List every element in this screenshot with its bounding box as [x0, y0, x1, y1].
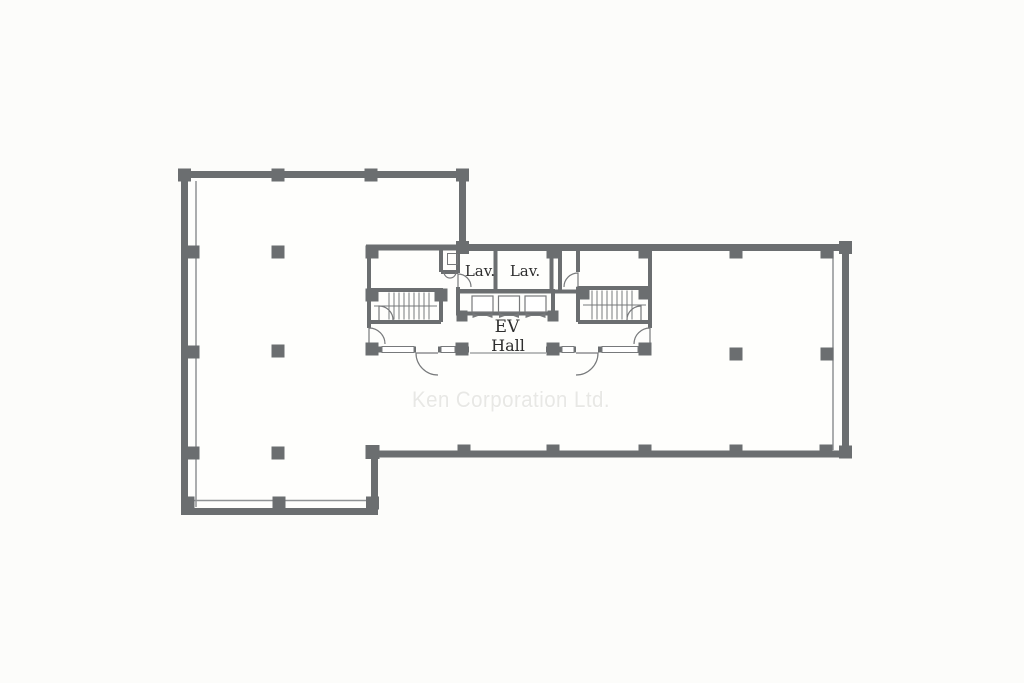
column: [187, 346, 200, 359]
watermark-text: Ken Corporation Ltd.: [412, 387, 610, 412]
column: [456, 169, 469, 182]
column: [458, 445, 471, 458]
column: [366, 246, 379, 259]
glazed-panel: [382, 347, 414, 353]
column: [187, 447, 200, 460]
column: [548, 311, 559, 322]
column: [639, 246, 652, 259]
column: [820, 445, 833, 458]
column: [547, 246, 560, 259]
column: [821, 348, 834, 361]
column: [730, 445, 743, 458]
column: [366, 445, 380, 459]
column: [547, 343, 560, 356]
column: [366, 497, 379, 510]
elevator-hall-label-line1: EV: [495, 317, 520, 337]
column: [187, 246, 200, 259]
elevator-hall-label-line2: Hall: [491, 336, 525, 355]
floor-plan-page: Lav. Lav. EV Hall Ken Corporation Ltd.: [0, 0, 1024, 683]
glazed-panel: [441, 347, 455, 353]
column: [457, 311, 468, 322]
column: [272, 246, 285, 259]
elevator-car: [499, 296, 520, 312]
column: [577, 287, 590, 300]
column: [178, 169, 191, 182]
column: [639, 287, 652, 300]
elevator-car: [525, 296, 546, 312]
column: [730, 348, 743, 361]
column: [839, 446, 852, 459]
column: [272, 345, 285, 358]
column: [547, 445, 560, 458]
lavatory-label-west: Lav.: [465, 262, 495, 280]
elevator-car: [472, 296, 493, 312]
column: [839, 241, 852, 254]
lavatory-label-east: Lav.: [510, 262, 540, 280]
glazed-panel: [602, 347, 638, 353]
column: [366, 343, 379, 356]
column: [639, 445, 652, 458]
column: [456, 343, 469, 356]
column: [435, 289, 448, 302]
column: [272, 169, 285, 182]
column: [730, 246, 743, 259]
column: [456, 241, 469, 254]
column: [639, 343, 652, 356]
glazed-panel: [562, 347, 574, 353]
floor-plan-svg: Lav. Lav. EV Hall Ken Corporation Ltd.: [0, 0, 1024, 683]
column: [182, 497, 195, 510]
column: [365, 169, 378, 182]
column: [821, 246, 834, 259]
column: [272, 447, 285, 460]
column: [366, 289, 379, 302]
column: [273, 497, 286, 510]
